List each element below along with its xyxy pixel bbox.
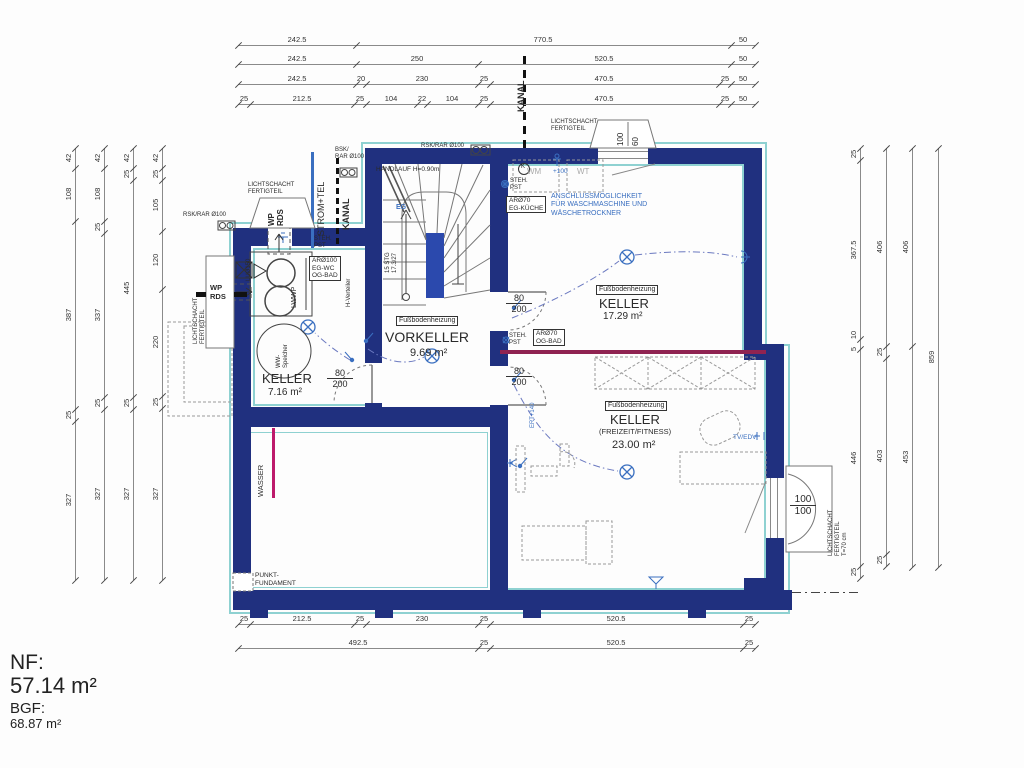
dim-label: 212.5 bbox=[282, 613, 322, 625]
dim-label: 25 bbox=[464, 613, 504, 625]
anschluss-label: ANSCHLUSSMÖGLICHKEIT FÜR WASCHMASCHINE U… bbox=[551, 193, 647, 218]
dim-label: 25 bbox=[92, 207, 104, 247]
dim-label: 50 bbox=[723, 73, 763, 85]
dim-label: 105 bbox=[150, 185, 162, 225]
dim-label: 242.5 bbox=[277, 34, 317, 46]
door-keller1729-dim: 80200 bbox=[506, 293, 532, 314]
dim-label: 367.5 bbox=[848, 230, 860, 270]
dim-label: 453 bbox=[900, 437, 912, 477]
dim-label: 406 bbox=[874, 227, 886, 267]
keller-1729-area: 17.29 m² bbox=[603, 311, 642, 323]
dim-label: 327 bbox=[63, 480, 75, 520]
dim-label: 220 bbox=[150, 322, 162, 362]
eg-label: EG bbox=[396, 204, 406, 212]
dim-label: 25 bbox=[63, 395, 75, 435]
dim-label: 25 bbox=[224, 613, 264, 625]
keller-1729-label: KELLER bbox=[599, 296, 649, 311]
punkt-fundament-icon bbox=[233, 573, 253, 591]
dim-label: 520.5 bbox=[584, 53, 624, 65]
wm-label: WM bbox=[527, 167, 541, 176]
dim-label: 250 bbox=[397, 53, 437, 65]
dim-label: 25 bbox=[848, 134, 860, 174]
stg-label: 15 STG 17.3/27 bbox=[385, 252, 399, 273]
dim-label: 25 bbox=[224, 93, 264, 105]
keller-716-area: 7.16 m² bbox=[268, 387, 302, 399]
ar70-ogbad-box: ARØ70 OG-BAD bbox=[533, 329, 565, 346]
dim-label: 445 bbox=[121, 268, 133, 308]
dim-label: 387 bbox=[63, 295, 75, 335]
right-col-1 bbox=[860, 148, 861, 578]
rsk-rar-top-label: RSK/RAR Ø100 bbox=[421, 143, 464, 150]
strom-tel-label: STROM+TEL bbox=[316, 182, 327, 236]
door-keller2300-dim: 80200 bbox=[506, 366, 532, 387]
lu150-label: LUØ150 bbox=[246, 259, 253, 281]
handlauf-label: HANDLAUF H=0.90m bbox=[376, 166, 439, 174]
dim-label: 25 bbox=[729, 637, 769, 649]
door-left-dim: 80200 bbox=[327, 368, 353, 389]
left-col-1 bbox=[75, 148, 76, 580]
dim-label: 327 bbox=[121, 474, 133, 514]
dim-label: 327 bbox=[150, 474, 162, 514]
dim-label: 25 bbox=[464, 73, 504, 85]
h-verteiler-label: H-Verteiler bbox=[346, 279, 353, 307]
wp-rds-left-label: WP RDS bbox=[210, 284, 226, 302]
lichtschacht-west-label: LICHTSCHACHT FERTIGTEIL bbox=[193, 298, 207, 344]
ert140-label: ERT+140 bbox=[530, 403, 537, 428]
right-col-3 bbox=[912, 148, 913, 567]
ww-speicher-label: WW- Speicher bbox=[276, 344, 290, 368]
wasser-label: WASSER bbox=[257, 465, 266, 497]
tv-edv-label: TV/EDV bbox=[733, 434, 756, 442]
dim-label: 327 bbox=[92, 474, 104, 514]
k-symbol-label: K bbox=[521, 164, 525, 171]
kanal-top-label: KANAL bbox=[516, 81, 527, 113]
window-sill-lines bbox=[612, 164, 766, 533]
lichtschacht-topleft-label: LICHTSCHACHT FERTIGTEIL bbox=[248, 182, 294, 196]
dim-label: 470.5 bbox=[584, 93, 624, 105]
wiring-lines bbox=[315, 252, 737, 471]
dim-label: 230 bbox=[402, 73, 442, 85]
dim-label: 50 bbox=[723, 53, 763, 65]
wt-label: WT bbox=[577, 167, 589, 176]
dim-label: 770.5 bbox=[523, 34, 563, 46]
dim-label: 120 bbox=[150, 240, 162, 280]
dim-label: 230 bbox=[402, 613, 442, 625]
vorkeller-label: VORKELLER bbox=[385, 329, 469, 346]
dim-label: 42 bbox=[92, 138, 104, 178]
dim-label: 25 bbox=[464, 93, 504, 105]
dim-label: 50 bbox=[723, 93, 763, 105]
dim-label: 50 bbox=[723, 34, 763, 46]
dim-label: 337 bbox=[92, 295, 104, 335]
dim-label: 25 bbox=[729, 613, 769, 625]
kanal-left-label: KANAL bbox=[341, 199, 352, 231]
lichtschacht-top-label: LICHTSCHACHT FERTIGTEIL bbox=[551, 119, 597, 133]
dim-label: 25 bbox=[464, 637, 504, 649]
dim-label: 470.5 bbox=[584, 73, 624, 85]
fbh-keller2300-box: Fußbodenheizung bbox=[605, 401, 667, 411]
dim-label: 25 bbox=[874, 332, 886, 372]
dim-label: 42 bbox=[63, 138, 75, 178]
steh-pst-label-3: STEH. PST bbox=[509, 333, 527, 347]
steh-pst-label-2: STEH. PST bbox=[510, 178, 528, 192]
dim-label: 406 bbox=[900, 227, 912, 267]
dim-label: 403 bbox=[874, 436, 886, 476]
floor-plan-canvas: NF: 57.14 m² BGF: 68.87 m² KANALSTROM+TE… bbox=[0, 0, 1024, 768]
dim-label: 242.5 bbox=[277, 53, 317, 65]
dim-label: 20 bbox=[341, 73, 381, 85]
ar100-egwc-box: ARØ100 EG-WC OG-BAD bbox=[309, 256, 341, 281]
left-col-2 bbox=[104, 148, 105, 580]
bsk-rar-label: BSK/ RAR Ø100 bbox=[335, 147, 364, 161]
dim-label: 446 bbox=[848, 438, 860, 478]
dim-label: 25 bbox=[874, 540, 886, 580]
fbh-vorkeller-box: Fußbodenheizung bbox=[396, 316, 458, 326]
lichtschacht-right-label: LICHTSCHACHT FERTIGTEIL T=70 cm bbox=[828, 510, 849, 556]
ar70-kueche-box: ARØ70 EG-KÜCHE bbox=[506, 196, 546, 213]
dim-label: 520.5 bbox=[596, 613, 636, 625]
dim-label: 492.5 bbox=[338, 637, 378, 649]
dim-label: 5 bbox=[848, 329, 860, 369]
lichtschacht-top-100: 100 bbox=[616, 133, 625, 146]
vorkeller-area: 9.69 m² bbox=[410, 347, 447, 360]
dim-label: 25 bbox=[92, 383, 104, 423]
dim-label: 25 bbox=[150, 382, 162, 422]
left-col-4 bbox=[162, 148, 163, 580]
dim-label: 25 bbox=[121, 154, 133, 194]
keller-2300-sub: (FREIZEIT/FITNESS) bbox=[599, 428, 671, 437]
rsk-rar-left-label: RSK/RAR Ø100 bbox=[183, 212, 226, 219]
dim-label: 520.5 bbox=[596, 637, 636, 649]
dim-label: 25 bbox=[340, 613, 380, 625]
keller-716-label: KELLER bbox=[262, 371, 312, 386]
steh-pst-label-1: STEH. PST bbox=[314, 236, 332, 250]
lwwp-label: LWWP bbox=[291, 287, 299, 308]
plus100-label: +100 bbox=[553, 168, 568, 176]
keller-2300-label: KELLER bbox=[610, 412, 660, 427]
dim-label: 859 bbox=[926, 337, 938, 377]
dim-label: 25 bbox=[121, 383, 133, 423]
window-right-dim: 100100 bbox=[790, 494, 816, 517]
dim-label: 242.5 bbox=[277, 73, 317, 85]
dim-label: 108 bbox=[63, 174, 75, 214]
punkt-fundament-label: PUNKT- FUNDAMENT bbox=[255, 572, 296, 587]
right-col-4 bbox=[938, 148, 939, 567]
left-col-3 bbox=[133, 148, 134, 580]
lichtschacht-top-60: 60 bbox=[631, 137, 640, 146]
dim-label: 25 bbox=[848, 552, 860, 592]
wp-rds-vertical-label: WP RDS bbox=[267, 209, 286, 226]
keller-2300-area: 23.00 m² bbox=[612, 439, 655, 452]
fbh-keller1729-box: Fußbodenheizung bbox=[596, 285, 658, 295]
dim-label: 212.5 bbox=[282, 93, 322, 105]
